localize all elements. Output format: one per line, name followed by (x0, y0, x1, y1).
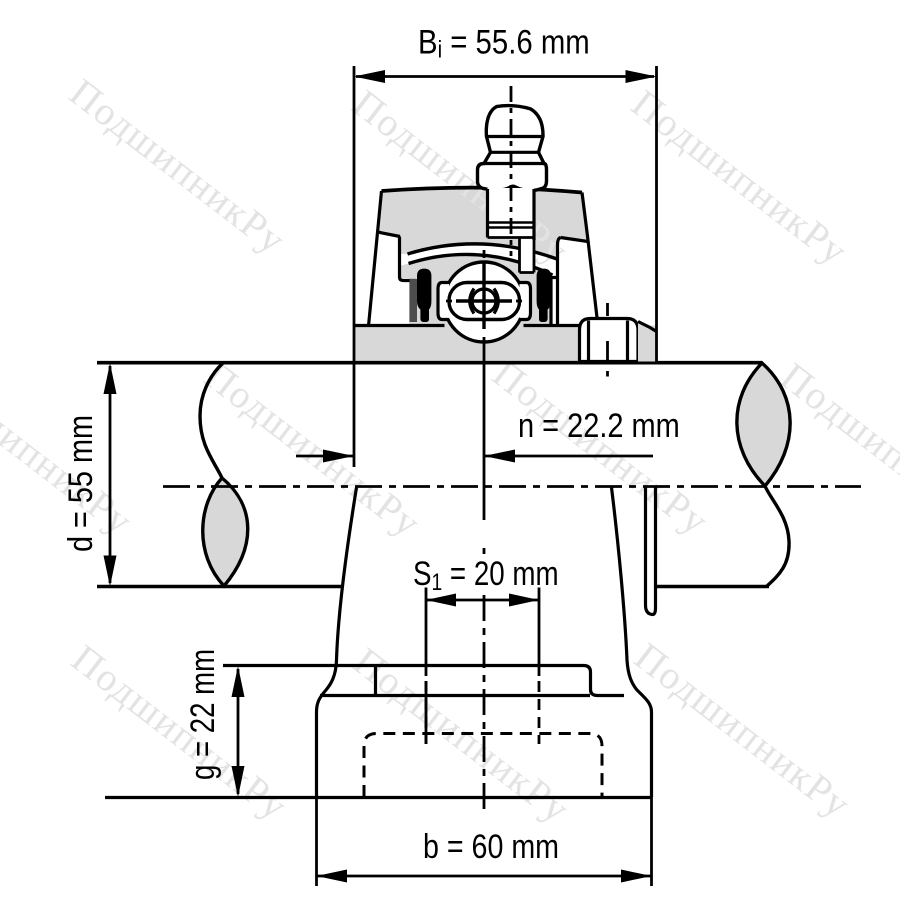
svg-text:Bi = 55.6 mm: Bi = 55.6 mm (418, 22, 590, 63)
svg-text:b = 60 mm: b = 60 mm (423, 826, 559, 865)
svg-text:g = 22 mm: g = 22 mm (183, 649, 222, 780)
svg-text:d = 55 mm: d = 55 mm (61, 415, 100, 552)
svg-text:n = 22.2 mm: n = 22.2 mm (518, 406, 680, 445)
